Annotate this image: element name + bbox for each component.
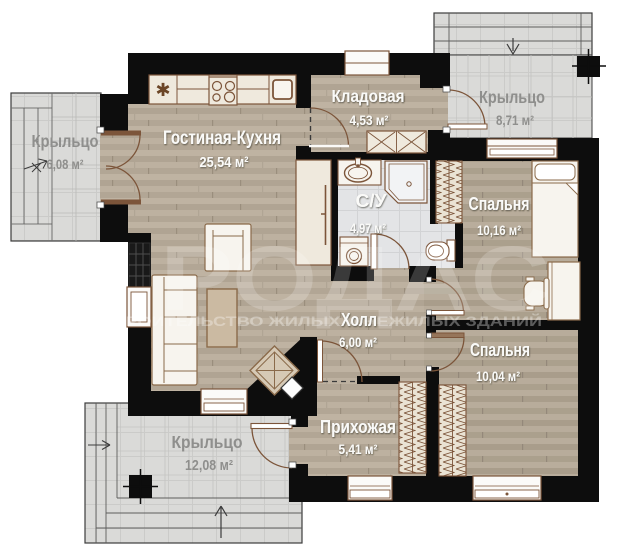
svg-text:Прихожая: Прихожая (320, 417, 396, 437)
svg-text:5,41 м²: 5,41 м² (339, 441, 378, 457)
svg-text:С/У: С/У (356, 191, 388, 211)
svg-text:Крыльцо: Крыльцо (479, 87, 545, 107)
svg-text:Крыльцо: Крыльцо (172, 432, 243, 452)
svg-text:25,54 м²: 25,54 м² (200, 154, 249, 171)
svg-text:Холл: Холл (341, 310, 377, 330)
svg-text:СТРОИТЕЛЬСТВО ЖИЛЫХ И НЕЖИЛЫХ: СТРОИТЕЛЬСТВО ЖИЛЫХ И НЕЖИЛЫХ ЗДАНИЙ (102, 314, 542, 329)
svg-text:Спальня: Спальня (470, 340, 530, 360)
svg-text:Крыльцо: Крыльцо (32, 131, 99, 151)
svg-text:✱: ✱ (155, 80, 170, 100)
svg-text:Гостиная-Кухня: Гостиная-Кухня (163, 128, 281, 149)
svg-text:Кладовая: Кладовая (332, 86, 405, 106)
svg-text:6,08 м²: 6,08 м² (47, 156, 84, 172)
svg-text:6,00 м²: 6,00 м² (339, 334, 377, 350)
svg-text:4,97 м²: 4,97 м² (350, 220, 386, 236)
svg-text:8,71 м²: 8,71 м² (496, 112, 534, 128)
svg-text:10,04 м²: 10,04 м² (476, 368, 520, 384)
svg-text:4,53 м²: 4,53 м² (350, 112, 389, 128)
svg-text:12,08 м²: 12,08 м² (185, 458, 233, 474)
svg-text:10,16 м²: 10,16 м² (477, 222, 521, 238)
svg-text:Спальня: Спальня (469, 194, 530, 214)
